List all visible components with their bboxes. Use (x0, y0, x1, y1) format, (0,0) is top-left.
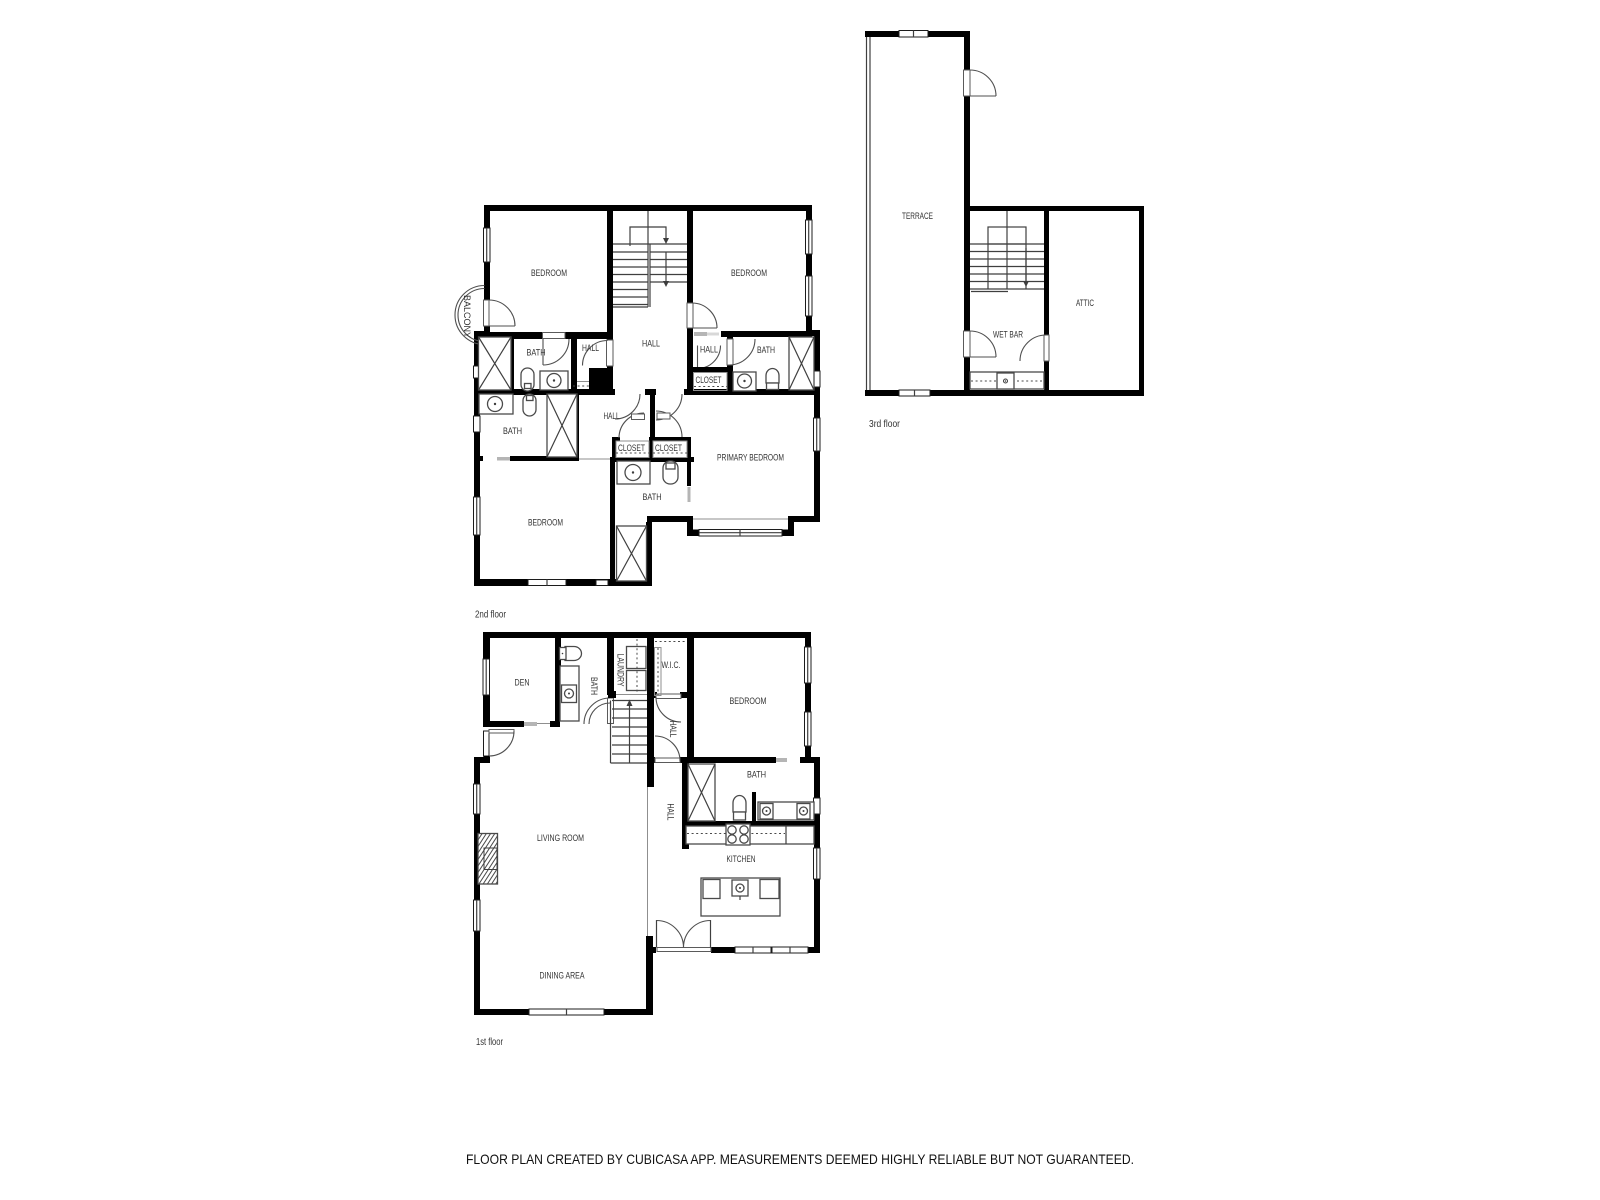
svg-text:BATH: BATH (527, 348, 546, 359)
svg-text:BATH: BATH (588, 677, 599, 695)
svg-text:ATTIC: ATTIC (1076, 298, 1094, 309)
svg-text:HALL: HALL (667, 721, 678, 738)
svg-text:2nd floor: 2nd floor (475, 610, 507, 621)
svg-text:CLOSET: CLOSET (696, 375, 722, 386)
svg-text:DEN: DEN (515, 678, 530, 689)
svg-text:3rd floor: 3rd floor (869, 419, 901, 430)
svg-text:LIVING ROOM: LIVING ROOM (537, 833, 584, 844)
svg-text:HALL: HALL (665, 804, 676, 821)
svg-text:1st floor: 1st floor (476, 1037, 504, 1048)
svg-text:TERRACE: TERRACE (902, 211, 933, 222)
svg-text:HALL: HALL (582, 343, 599, 354)
svg-text:FLOOR PLAN CREATED BY CUBICASA: FLOOR PLAN CREATED BY CUBICASA APP. MEAS… (466, 1151, 1134, 1167)
svg-text:DINING AREA: DINING AREA (540, 971, 585, 982)
svg-text:BATH: BATH (747, 770, 766, 781)
svg-text:HALL: HALL (700, 345, 718, 356)
svg-text:BEDROOM: BEDROOM (531, 268, 567, 279)
svg-text:CLOSET: CLOSET (655, 443, 682, 454)
svg-text:HALL: HALL (642, 339, 660, 350)
svg-text:PRIMARY BEDROOM: PRIMARY BEDROOM (717, 453, 784, 464)
svg-text:CLOSET: CLOSET (618, 443, 645, 454)
svg-text:BATH: BATH (643, 492, 662, 503)
svg-text:BATH: BATH (503, 426, 522, 437)
svg-text:KITCHEN: KITCHEN (727, 854, 756, 865)
svg-text:W.I.C.: W.I.C. (662, 660, 681, 671)
svg-text:BEDROOM: BEDROOM (528, 518, 563, 529)
svg-text:BATH: BATH (757, 345, 775, 356)
svg-text:BALCONY: BALCONY (461, 295, 472, 339)
svg-text:WET BAR: WET BAR (993, 330, 1023, 341)
svg-text:BEDROOM: BEDROOM (731, 268, 767, 279)
svg-text:LAUNDRY: LAUNDRY (615, 654, 626, 687)
svg-text:BEDROOM: BEDROOM (730, 696, 767, 707)
svg-text:HALL: HALL (604, 411, 620, 422)
